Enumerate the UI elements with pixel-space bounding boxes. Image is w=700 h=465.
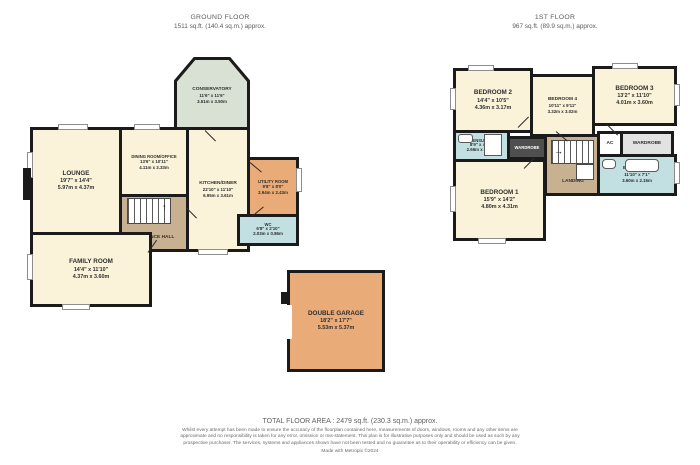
window bbox=[58, 124, 88, 130]
room-dim-imperial: 15'9" x 14'2" bbox=[484, 197, 516, 204]
room-dim-metric: 3.60m x 2.15m bbox=[622, 178, 652, 184]
window bbox=[612, 63, 638, 69]
room-dining-office: DINING ROOM/OFFICE 13'6" x 10'11" 4.11m … bbox=[119, 127, 189, 197]
room-label: WARDROBE bbox=[515, 145, 540, 150]
room-dim-imperial: 13'2" x 11'10" bbox=[617, 93, 651, 100]
room-conservatory-inner: CONSERVATORY 11'6" x 11'6" 3.51m x 3.50m bbox=[177, 60, 247, 132]
window bbox=[27, 254, 33, 280]
disclaimer-text: Whilst every attempt has been made to en… bbox=[180, 428, 520, 447]
room-dim-metric: 3.51m x 3.50m bbox=[197, 99, 227, 105]
room-dim-imperial: 19'7" x 14'4" bbox=[60, 178, 92, 185]
stairs-up-arrow-icon: ↑ bbox=[162, 203, 167, 212]
window bbox=[296, 168, 302, 192]
window bbox=[478, 238, 506, 244]
room-wardrobe-hall: WARDROBE bbox=[507, 136, 547, 160]
bathtub-icon bbox=[625, 159, 659, 172]
room-dim-imperial: 18'2" x 17'7" bbox=[320, 318, 352, 325]
room-conservatory: CONSERVATORY 11'6" x 11'6" 3.51m x 3.50m bbox=[174, 57, 250, 135]
footer: TOTAL FLOOR AREA : 2479 sq.ft. (230.3 sq… bbox=[180, 418, 520, 454]
room-dim-metric: 2.94m x 2.43m bbox=[258, 190, 288, 196]
room-dim-metric: 6.95m x 3.61m bbox=[203, 193, 233, 199]
window bbox=[62, 304, 90, 310]
room-label: FAMILY ROOM bbox=[69, 258, 113, 266]
garage-wall-tab bbox=[281, 292, 289, 304]
shower-icon bbox=[484, 134, 502, 156]
room-family: FAMILY ROOM 14'4" x 11'10" 4.37m x 3.60m bbox=[30, 232, 152, 307]
room-bedroom-1: BEDROOM 1 15'9" x 14'2" 4.80m x 4.31m bbox=[453, 159, 546, 241]
room-dim-metric: 2.03m x 0.86m bbox=[253, 232, 283, 237]
window bbox=[450, 186, 456, 212]
room-label: BEDROOM 2 bbox=[474, 89, 512, 97]
ground-floor-title: GROUND FLOOR bbox=[120, 14, 320, 21]
first-floor-header: 1ST FLOOR 967 sq.ft. (89.9 sq.m.) approx… bbox=[455, 14, 655, 30]
room-lounge: LOUNGE 19'7" x 14'4" 5.97m x 4.37m bbox=[30, 127, 122, 235]
window bbox=[450, 88, 456, 110]
metropix-credit: Made with Metropix ©2024 bbox=[180, 449, 520, 454]
room-label: DOUBLE GARAGE bbox=[308, 310, 364, 318]
stair-landing-box bbox=[576, 164, 594, 180]
ensuite-sink-icon bbox=[458, 134, 473, 143]
room-dim-metric: 5.97m x 4.37m bbox=[58, 185, 95, 192]
room-bedroom-3: BEDROOM 3 13'2" x 11'10" 4.01m x 3.60m bbox=[592, 66, 677, 126]
fireplace-tab bbox=[23, 168, 31, 200]
window bbox=[134, 124, 160, 130]
room-bedroom-4: BEDROOM 4 10'11" x 9'11" 3.32m x 3.02m bbox=[530, 74, 595, 137]
room-label: AC bbox=[607, 141, 614, 147]
room-dim-metric: 4.11m x 3.33m bbox=[139, 165, 169, 171]
room-dim-metric: 4.80m x 4.31m bbox=[481, 204, 518, 211]
ground-floor-area: 1511 sq.ft. (140.4 sq.m.) approx. bbox=[120, 23, 320, 30]
window bbox=[674, 84, 680, 106]
total-floor-area: TOTAL FLOOR AREA : 2479 sq.ft. (230.3 sq… bbox=[180, 418, 520, 425]
room-dim-metric: 4.01m x 3.60m bbox=[616, 100, 653, 107]
first-floor-area: 967 sq.ft. (89.9 sq.m.) approx. bbox=[455, 23, 655, 30]
room-dim-metric: 3.32m x 3.02m bbox=[548, 109, 578, 115]
ground-floor-header: GROUND FLOOR 1511 sq.ft. (140.4 sq.m.) a… bbox=[120, 14, 320, 30]
first-floor-title: 1ST FLOOR bbox=[455, 14, 655, 21]
room-dim-imperial: 14'4" x 10'5" bbox=[477, 98, 509, 105]
room-wc: WC 6'8" x 2'10" 2.03m x 0.86m bbox=[237, 214, 299, 246]
room-label: LOUNGE bbox=[63, 170, 90, 178]
floorplan-canvas: GROUND FLOOR 1511 sq.ft. (140.4 sq.m.) a… bbox=[0, 0, 700, 465]
window bbox=[468, 65, 494, 71]
bathroom-sink-icon bbox=[602, 159, 616, 169]
garage-door-gap bbox=[285, 305, 292, 339]
room-label: WARDROBE bbox=[633, 141, 662, 147]
window bbox=[674, 162, 680, 184]
stairs-direction-arrow-icon: → bbox=[554, 147, 563, 156]
room-dim-metric: 4.36m x 3.17m bbox=[475, 105, 512, 112]
window bbox=[198, 249, 228, 255]
room-dim-imperial: 14'4" x 11'10" bbox=[74, 267, 108, 274]
room-dim-metric: 5.53m x 5.37m bbox=[318, 325, 355, 332]
room-label: BEDROOM 1 bbox=[480, 189, 518, 197]
room-double-garage: DOUBLE GARAGE 18'2" x 17'7" 5.53m x 5.37… bbox=[287, 270, 385, 372]
room-label: BEDROOM 3 bbox=[615, 85, 653, 93]
room-dim-metric: 4.37m x 3.60m bbox=[73, 274, 110, 281]
